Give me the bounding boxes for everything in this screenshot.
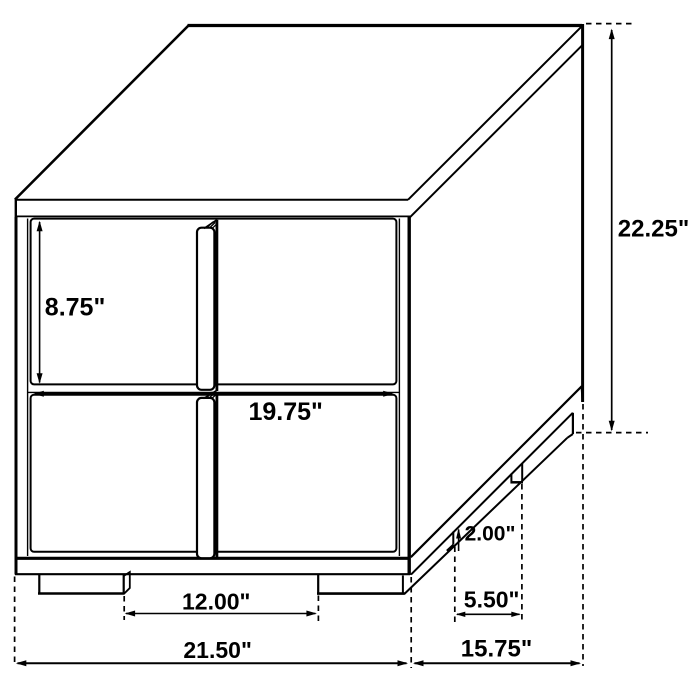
svg-text:2.00": 2.00" xyxy=(465,523,516,546)
svg-text:19.75": 19.75" xyxy=(249,398,323,426)
svg-text:21.50": 21.50" xyxy=(183,637,251,663)
svg-text:22.25": 22.25" xyxy=(618,216,689,243)
svg-text:12.00": 12.00" xyxy=(182,588,250,614)
svg-text:15.75": 15.75" xyxy=(461,636,532,663)
svg-text:5.50": 5.50" xyxy=(464,586,520,612)
svg-text:8.75": 8.75" xyxy=(45,294,106,322)
